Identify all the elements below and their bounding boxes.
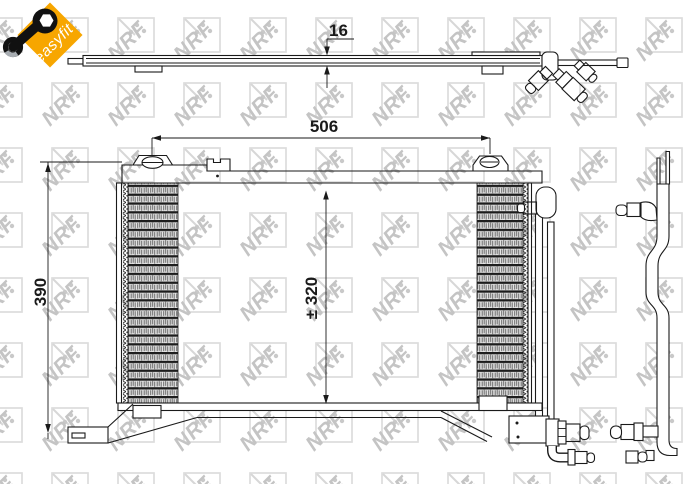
technical-drawing: NRF easyfit	[0, 0, 700, 484]
bottom-tab-right	[479, 396, 507, 411]
watermark-layer	[0, 0, 700, 484]
dim-core-height-label: ± 320	[302, 277, 321, 319]
core-fins-left	[123, 183, 178, 403]
dim-height-label: 390	[31, 278, 50, 306]
bottom-tab-left	[133, 406, 161, 419]
side-plate-left	[117, 183, 122, 403]
dim-width-label: 506	[310, 117, 338, 136]
fork-prong-right	[666, 152, 670, 185]
dim-depth-label: 16	[329, 21, 348, 40]
fork-prong-left	[657, 158, 660, 184]
core-fins-right	[477, 183, 528, 403]
side-plate-right	[528, 183, 532, 403]
product-drawing-page: NRF easyfit	[0, 0, 700, 484]
